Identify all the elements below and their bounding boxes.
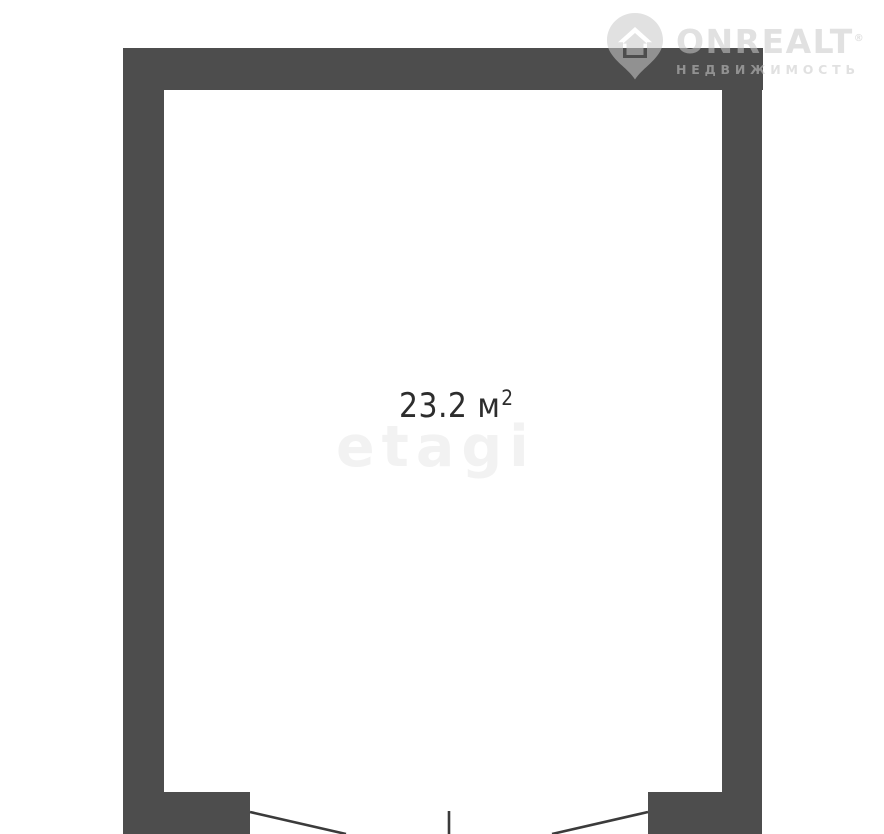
logo-subtitle: НЕДВИЖИМОСТЬ [676, 62, 864, 77]
floorplan-canvas: etagi 23.2 м2 ONREALT® НЕДВИЖИМОСТЬ [0, 0, 884, 834]
room-area-label: 23.2 м2 [399, 386, 513, 426]
registered-mark: ® [854, 33, 864, 44]
logo-text-block: ONREALT® НЕДВИЖИМОСТЬ [676, 25, 864, 77]
wall-bottom-right [648, 792, 762, 834]
wall-right [722, 48, 762, 834]
door-swing-line-left [250, 812, 346, 834]
wall-left [123, 48, 164, 834]
door-swing-line-right [552, 812, 648, 834]
onrealt-logo: ONREALT® НЕДВИЖИМОСТЬ [603, 12, 864, 82]
area-value: 23.2 [399, 386, 467, 426]
wall-bottom-left [123, 792, 250, 834]
logo-brand-text: ONREALT® [676, 22, 864, 61]
location-pin-house-icon [603, 12, 667, 82]
logo-brand-word: ONREALT [676, 22, 854, 61]
area-exponent: 2 [501, 385, 513, 410]
area-unit: м [467, 386, 500, 426]
